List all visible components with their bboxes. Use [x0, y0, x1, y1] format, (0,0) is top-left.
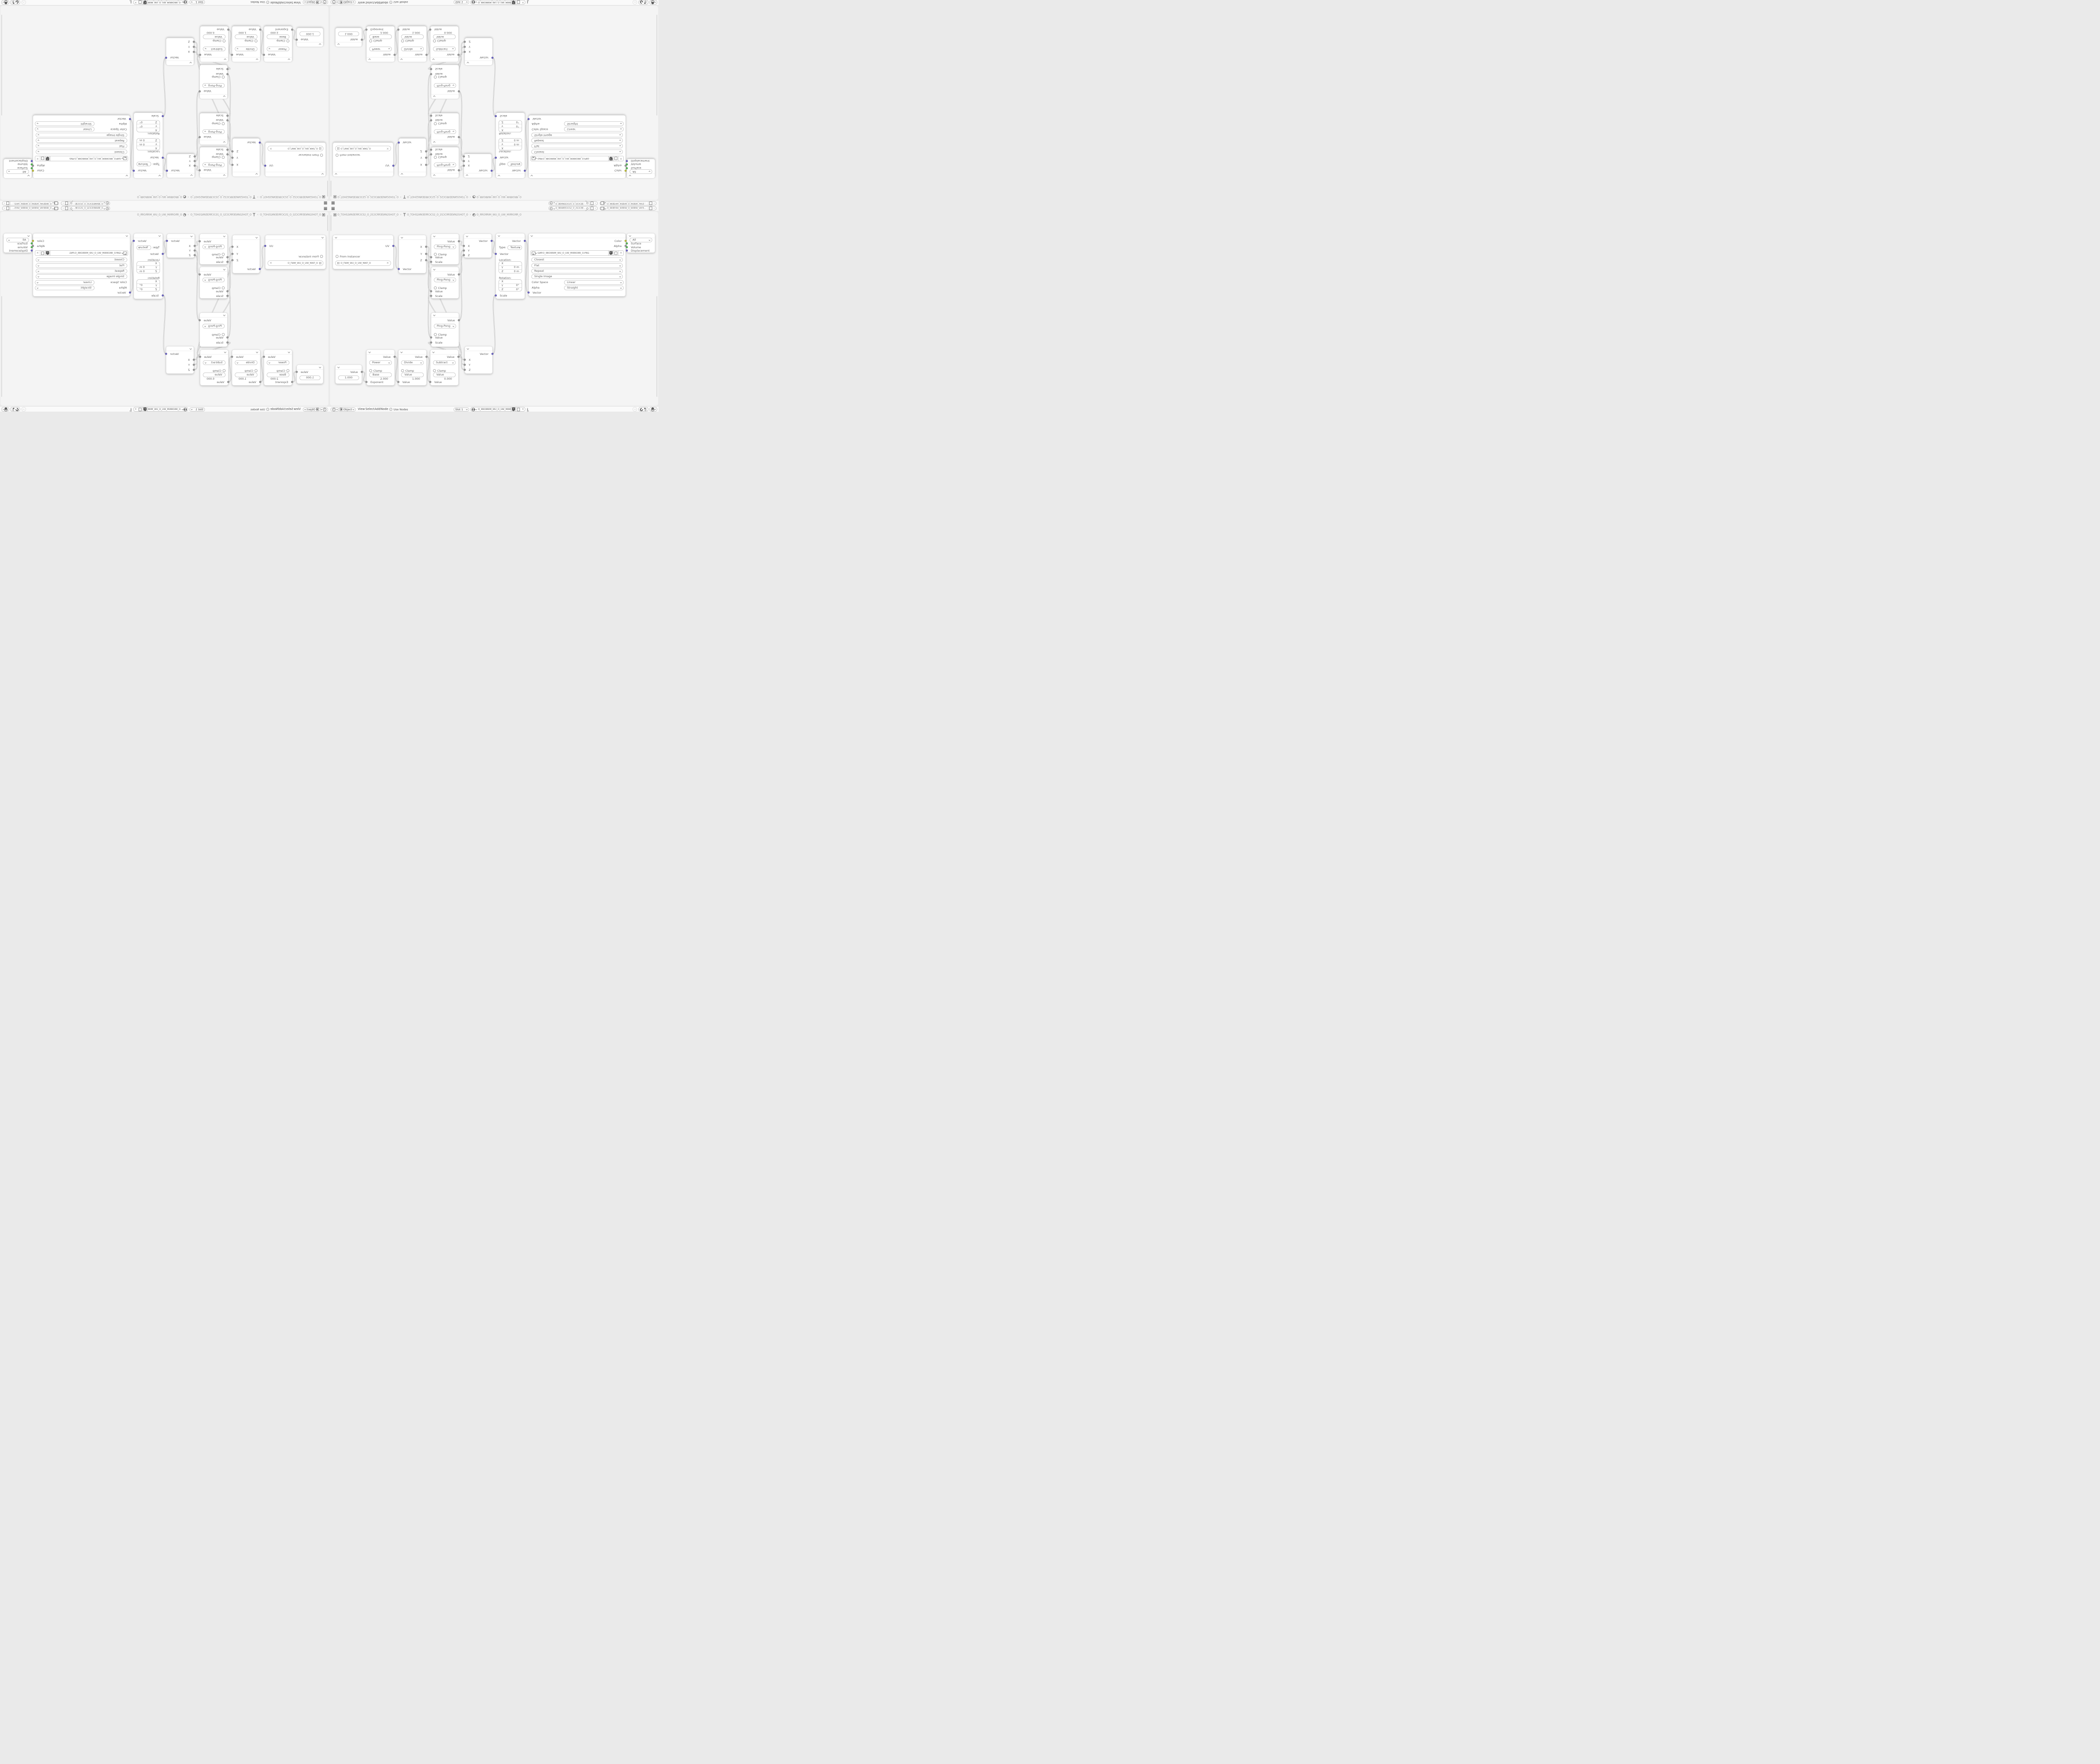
select-repeat[interactable]: Repeat — [36, 138, 127, 143]
new-view-layer-button[interactable] — [6, 202, 10, 205]
select-subtract[interactable]: Subtract — [433, 47, 456, 51]
select-color-space[interactable]: Linear — [564, 280, 624, 285]
node-collapse-header[interactable] — [367, 350, 394, 354]
node-collapse-header[interactable] — [167, 234, 194, 239]
node-math-divide[interactable]: ValueDivideClampValue1.000Value — [398, 26, 427, 62]
socket-vector[interactable] — [524, 170, 526, 172]
new-view-layer-button[interactable] — [648, 207, 652, 210]
scene-selector[interactable]: O_ƎEИИEƎƆCS2_O_2SƆCƎEИ… × — [549, 206, 598, 210]
node-collapse-header[interactable] — [465, 346, 492, 351]
number-field-value[interactable]: Value0.000 — [203, 34, 226, 39]
socket-gray[interactable] — [194, 165, 196, 167]
select-ping-pong[interactable]: Ping-Pong — [434, 324, 456, 328]
node-combine-xyz[interactable]: VectorXYZ — [464, 234, 492, 258]
image-datablock-selector[interactable]: GИP.O_ЯROЯRIM_WU_O_UW_MIЯROЯR_O.PNG✓× — [35, 156, 128, 161]
fake-user-button[interactable]: ✓ — [143, 0, 148, 4]
axis-field[interactable]: Y0 m — [499, 142, 522, 146]
number-field-base[interactable]: Base2.000 — [267, 34, 289, 39]
menu-add[interactable]: Add — [375, 0, 381, 5]
new-image-button[interactable] — [613, 156, 618, 161]
select-color-space[interactable]: Linear — [564, 127, 624, 131]
menu-select[interactable]: Select — [284, 407, 293, 412]
xyz-field-group[interactable]: X0 mY0 mZ0 m — [499, 138, 522, 150]
socket-gray[interactable] — [361, 39, 363, 41]
socket-gray[interactable] — [193, 369, 195, 371]
socket-gray[interactable] — [430, 290, 432, 292]
socket-gray[interactable] — [199, 169, 201, 171]
socket-vector[interactable] — [129, 118, 131, 120]
select-ping-pong[interactable]: Ping-Pong — [202, 129, 225, 134]
socket-gray[interactable] — [464, 359, 466, 361]
pin-icon[interactable] — [586, 207, 589, 210]
select-alpha[interactable]: Straight — [564, 121, 624, 126]
new-scene-button[interactable] — [589, 202, 593, 205]
select-ping-pong[interactable]: Ping-Pong — [434, 244, 456, 249]
unlink-image-button[interactable]: × — [35, 251, 40, 255]
socket-gray[interactable] — [425, 164, 427, 166]
node-mapping[interactable]: VectorType:TextureVectorLocation:X0 mY0 … — [134, 233, 163, 299]
number-field-value[interactable]: Value0.000 — [433, 373, 456, 377]
socket-vector[interactable] — [626, 160, 628, 162]
node-uv-map[interactable]: UVFrom InstancerO_ПAM_WU_O_UW_MAП_O× — [333, 235, 394, 269]
new-material-button[interactable] — [138, 0, 143, 4]
snap-controls[interactable] — [638, 407, 648, 412]
material-selector[interactable]: O_ЯROЯRIM_WU_O_UW_MIЯROЯR_O ✓ × — [133, 0, 188, 5]
axis-field[interactable]: Y0 m — [499, 265, 522, 269]
socket-gray[interactable] — [226, 295, 228, 297]
socket-gray[interactable] — [463, 249, 465, 252]
select-flat[interactable]: Flat — [531, 144, 623, 148]
menu-node[interactable]: Node — [381, 407, 388, 412]
socket-gray[interactable] — [463, 160, 465, 162]
checkbox-clamp[interactable]: Clamp — [434, 122, 447, 126]
scene-selector[interactable]: O_ƎEИИEƎƆCS2_O_2SƆCƎEИ… × — [61, 201, 110, 205]
number-field-value[interactable]: Value1.000 — [235, 34, 257, 39]
select-ping-pong[interactable]: Ping-Pong — [434, 278, 456, 282]
back-arrow-button[interactable] — [633, 0, 637, 5]
node-collapse-header[interactable] — [333, 172, 393, 176]
node-collapse-header[interactable] — [264, 57, 292, 62]
socket-gray[interactable] — [226, 341, 228, 344]
socket-gray[interactable] — [425, 259, 427, 261]
pin-material-icon[interactable] — [527, 408, 528, 412]
socket-gray[interactable] — [458, 90, 460, 92]
breadcrumb-item[interactable]: O_TOHS2ИNƎEЯRƆCS2_O_2SƆCЯRƎEИN2SHOT_O — [191, 195, 256, 199]
menu-add[interactable]: Add — [278, 0, 284, 5]
node-value[interactable]: Value1.000 — [297, 28, 323, 47]
node-collapse-header[interactable] — [431, 173, 459, 178]
new-view-layer-button[interactable] — [648, 202, 652, 205]
new-material-button[interactable] — [516, 0, 521, 4]
node-collapse-header[interactable] — [200, 350, 228, 354]
uv-map-selector[interactable]: O_ПAM_WU_O_UW_MAП_O× — [335, 146, 391, 151]
node-material-output[interactable]: AllSurfaceVolumeDisplacement — [3, 159, 32, 178]
axis-field[interactable]: X0° — [499, 280, 522, 283]
socket-gray[interactable] — [458, 273, 460, 276]
select-ping-pong[interactable]: Ping-Pong — [202, 244, 225, 249]
select-alpha[interactable]: Straight — [564, 286, 624, 290]
socket-gray[interactable] — [296, 371, 298, 373]
socket-gray[interactable] — [263, 356, 265, 358]
pin-material-icon[interactable] — [527, 0, 528, 4]
node-collapse-header[interactable] — [200, 57, 228, 62]
node-collapse-header[interactable] — [166, 346, 194, 351]
unlink-material-button[interactable]: × — [134, 407, 138, 411]
socket-gray[interactable] — [464, 364, 466, 366]
socket-gray[interactable] — [231, 259, 234, 261]
node-separate-xyz[interactable]: XYZVector — [399, 235, 426, 273]
socket-gray[interactable] — [226, 68, 228, 70]
socket-gray[interactable] — [194, 245, 196, 247]
select-closest[interactable]: Closest — [531, 150, 623, 154]
socket-vector[interactable] — [31, 249, 33, 252]
xyz-field-group[interactable]: X0°Y0°Z0° — [499, 120, 522, 132]
axis-field[interactable]: Z0° — [499, 121, 522, 124]
socket-gray[interactable] — [194, 160, 196, 162]
checkbox-from-instancer[interactable]: From Instancer — [299, 153, 323, 157]
socket-vector[interactable] — [264, 245, 266, 247]
select-power[interactable]: Power — [267, 360, 289, 365]
value-field[interactable]: 1.000 — [299, 375, 320, 380]
new-image-button[interactable] — [613, 251, 618, 255]
node-collapse-header[interactable] — [33, 234, 130, 238]
node-collapse-header[interactable] — [431, 267, 459, 272]
scene-selector[interactable]: O_ƎEИИEƎƆCS2_O_2SƆCƎEИ… × — [61, 206, 110, 210]
view-layer-selector[interactable]: O_ЯRƎEYAV_WƎEIW_O_WIƎEW_VAYƎEЯR_O × — [600, 206, 656, 210]
select-subtract[interactable]: Subtract — [203, 47, 226, 51]
node-math-power[interactable]: ValuePowerClampBase2.000Exponent — [366, 349, 395, 386]
socket-shader[interactable] — [31, 163, 33, 165]
node-collapse-header[interactable] — [297, 42, 323, 47]
socket-shader[interactable] — [31, 167, 33, 169]
node-collapse-header[interactable] — [431, 234, 459, 239]
socket-gray[interactable] — [226, 153, 228, 155]
socket-vector[interactable] — [491, 57, 493, 59]
node-combine-xyz-scale[interactable]: VectorXYZ — [166, 38, 194, 66]
select-divide[interactable]: Divide — [235, 360, 257, 365]
node-collapse-header[interactable] — [496, 234, 525, 238]
socket-gray[interactable] — [231, 246, 234, 248]
fake-user-button[interactable]: ✓ — [608, 156, 613, 161]
node-combine-xyz-scale[interactable]: VectorXYZ — [166, 346, 194, 374]
menu-node[interactable]: Node — [270, 0, 278, 5]
socket-gray[interactable] — [430, 341, 432, 344]
snap-controls[interactable] — [10, 407, 20, 412]
node-collapse-header[interactable] — [264, 350, 292, 354]
slot-dropdown[interactable]: Slot 1 — [454, 407, 469, 412]
socket-gray[interactable] — [231, 157, 234, 159]
node-math-power[interactable]: ValuePowerClampBase2.000Exponent — [366, 26, 395, 62]
uv-map-selector[interactable]: O_ПAM_WU_O_UW_MAП_O× — [268, 260, 323, 266]
xyz-field-group[interactable]: X0°Y0°Z0° — [136, 120, 160, 132]
node-image-texture[interactable]: ColorAlphaGИP.O_ЯROЯRIM_WU_O_UW_MIЯROЯR_… — [528, 233, 626, 297]
socket-gray[interactable] — [430, 68, 432, 70]
breadcrumb-item[interactable]: O_TOHS2ИNƎEЯRƆCS2_O_2SƆCЯRƎEИN2SHOT_O — [333, 196, 399, 199]
socket-gray[interactable] — [457, 356, 459, 358]
select-ping-pong[interactable]: Ping-Pong — [202, 324, 225, 328]
view-layer-selector[interactable]: O_ЯRƎEYAV_WƎEIW_O_WIƎEW_VAYƎEЯR_O × — [600, 201, 656, 205]
material-selector[interactable]: O_ЯROЯRIM_WU_O_UW_MIЯROЯR_O ✓ × — [470, 0, 525, 5]
socket-gray[interactable] — [263, 54, 265, 56]
node-math-pingpong-x[interactable]: ValuePing-PongClampValueScale — [199, 234, 228, 265]
socket-gray[interactable] — [291, 29, 293, 31]
socket-vector[interactable] — [524, 240, 526, 242]
use-nodes-checkbox[interactable]: ✓ Use Nodes — [250, 408, 269, 411]
node-math-pingpong-y[interactable]: ValuePing-PongClampValueScale — [431, 267, 459, 299]
socket-gray[interactable] — [430, 115, 432, 117]
select-single-image[interactable]: Single Image — [531, 274, 623, 279]
select-type[interactable]: Texture — [136, 162, 151, 166]
node-mapping[interactable]: VectorType:TextureVectorLocation:X0 mY0 … — [496, 233, 525, 299]
select-ping-pong[interactable]: Ping-Pong — [202, 278, 225, 282]
socket-gray[interactable] — [194, 155, 196, 157]
node-collapse-header[interactable] — [336, 42, 362, 47]
select-type[interactable]: Texture — [136, 245, 151, 250]
select-subtract[interactable]: Subtract — [203, 360, 226, 365]
breadcrumb-item[interactable]: O_TOHS2ИNƎEЯRƆCS2_O_2SƆCЯRƎEИN2SHOT_O — [403, 213, 468, 216]
hamburger-menu-icon[interactable] — [331, 207, 335, 211]
view-layer-selector[interactable]: O_ЯRƎEYAV_WƎEIW_O_WIƎEW_VAYƎEЯR_O × — [2, 201, 59, 205]
socket-color[interactable] — [625, 170, 627, 172]
node-uv-map[interactable]: UVFrom InstancerO_ПAM_WU_O_UW_MAП_O× — [333, 142, 394, 177]
node-math-pingpong-x[interactable]: ValuePing-PongClampValueScale — [431, 147, 459, 178]
node-math-divide[interactable]: ValueDivideClampValue1.000Value — [398, 349, 427, 386]
menu-view[interactable]: View — [358, 407, 365, 412]
select-single-image[interactable]: Single Image — [36, 133, 127, 137]
node-math-subtract[interactable]: ValueSubtractClampValue0.000Value — [430, 349, 459, 386]
socket-vector[interactable] — [495, 253, 497, 255]
socket-gray[interactable] — [463, 245, 465, 247]
axis-field[interactable]: Y0° — [499, 124, 522, 128]
proportional-edit-controls[interactable] — [1, 0, 9, 5]
node-collapse-header[interactable] — [134, 173, 163, 178]
socket-shader[interactable] — [626, 163, 628, 165]
socket-gray[interactable] — [463, 155, 465, 157]
socket-shader[interactable] — [626, 246, 628, 248]
socket-shader[interactable] — [31, 246, 33, 248]
socket-vector[interactable] — [528, 118, 530, 120]
node-math-pingpong-z[interactable]: ValuePing-PongClampValueScale — [431, 312, 459, 347]
node-collapse-header[interactable] — [233, 172, 260, 176]
axis-field[interactable]: Z0 m — [499, 269, 522, 273]
new-image-button[interactable] — [40, 156, 45, 161]
node-collapse-header[interactable] — [333, 235, 393, 240]
select-divide[interactable]: Divide — [401, 360, 424, 365]
node-collapse-header[interactable] — [33, 173, 130, 178]
view-layer-selector[interactable]: O_ЯRƎEYAV_WƎEIW_O_WIƎEW_VAYƎEЯR_O × — [2, 206, 59, 210]
checkbox-clamp[interactable]: Clamp — [401, 369, 414, 373]
xyz-field-group[interactable]: X0°Y0°Z0° — [136, 279, 160, 291]
node-value[interactable]: Value1.000 — [335, 28, 362, 47]
socket-gray[interactable] — [425, 157, 427, 159]
socket-vector[interactable] — [495, 157, 497, 159]
node-collapse-header[interactable] — [465, 60, 492, 65]
select-divide[interactable]: Divide — [235, 47, 257, 51]
select-ping-pong[interactable]: Ping-Pong — [434, 163, 456, 167]
slot-dropdown[interactable]: Slot 1 — [189, 0, 205, 5]
node-separate-xyz[interactable]: XYZVector — [399, 138, 426, 177]
socket-gray[interactable] — [463, 165, 465, 167]
node-collapse-header[interactable] — [232, 350, 260, 354]
back-arrow-button[interactable] — [21, 407, 26, 412]
socket-gray[interactable] — [429, 381, 431, 383]
socket-gray[interactable] — [193, 51, 195, 53]
node-collapse-header[interactable] — [265, 235, 325, 240]
node-collapse-header[interactable] — [200, 173, 227, 178]
socket-gray[interactable] — [199, 54, 201, 56]
select-closest[interactable]: Closest — [36, 257, 127, 262]
select-ping-pong[interactable]: Ping-Pong — [434, 83, 456, 88]
number-field-value[interactable]: Value0.000 — [433, 34, 456, 39]
new-scene-button[interactable] — [65, 202, 69, 205]
node-collapse-header[interactable] — [4, 173, 31, 178]
socket-gray[interactable] — [365, 29, 367, 31]
socket-gray[interactable] — [231, 253, 234, 255]
node-collapse-header[interactable] — [265, 172, 325, 176]
xyz-field-group[interactable]: X0 mY0 mZ0 m — [136, 138, 160, 150]
socket-gray[interactable] — [199, 136, 201, 138]
number-field-value[interactable]: Value1.000 — [401, 34, 424, 39]
node-collapse-header[interactable] — [399, 235, 426, 240]
new-scene-button[interactable] — [65, 207, 69, 210]
breadcrumb-item[interactable]: O_TOHS2ИNƎEЯRƆCS2_O_2SƆCЯRƎEИN2SHOT_O — [260, 213, 325, 216]
proportional-edit-controls[interactable] — [1, 407, 9, 412]
socket-gray[interactable] — [226, 290, 228, 292]
node-collapse-header[interactable] — [367, 57, 394, 62]
new-image-button[interactable] — [40, 251, 45, 255]
socket-gray[interactable] — [425, 54, 428, 56]
menu-select[interactable]: Select — [365, 0, 375, 5]
use-nodes-checkbox[interactable]: ✓ Use Nodes — [389, 1, 408, 4]
node-uv-map[interactable]: UVFrom InstancerO_ПAM_WU_O_UW_MAП_O× — [265, 142, 326, 177]
socket-vector[interactable] — [528, 291, 530, 294]
select-repeat[interactable]: Repeat — [531, 138, 623, 143]
node-collapse-header[interactable] — [529, 173, 625, 178]
number-field-base[interactable]: Base2.000 — [267, 373, 289, 377]
node-material-output[interactable]: AllSurfaceVolumeDisplacement — [3, 233, 32, 253]
socket-gray[interactable] — [227, 29, 229, 31]
socket-gray[interactable] — [199, 90, 201, 92]
pin-icon[interactable] — [70, 202, 73, 205]
material-selector[interactable]: O_ЯROЯRIM_WU_O_UW_MIЯROЯR_O ✓ × — [470, 407, 525, 412]
socket-gray[interactable] — [193, 46, 195, 48]
socket-gray[interactable] — [430, 256, 432, 258]
axis-field[interactable]: Y0 m — [137, 265, 160, 269]
axis-field[interactable]: Z0° — [499, 287, 522, 291]
select-divide[interactable]: Divide — [401, 47, 424, 51]
menu-node[interactable]: Node — [270, 407, 278, 412]
editor-type-button[interactable] — [319, 407, 328, 412]
node-image-texture[interactable]: ColorAlphaGИP.O_ЯROЯRIM_WU_O_UW_MIЯROЯR_… — [33, 115, 130, 178]
breadcrumb-item[interactable]: O_ЯROЯRIM_WU_O_UW_MIЯROЯR_O — [137, 196, 186, 199]
uv-map-selector[interactable]: O_ПAM_WU_O_UW_MAП_O× — [268, 146, 323, 151]
breadcrumb-item[interactable]: O_TOHS2ИNƎEЯRƆCS2_O_2SƆCЯRƎEИN2SHOT_O — [333, 213, 399, 216]
node-collapse-header[interactable] — [627, 173, 655, 178]
mode-dropdown[interactable]: Object — [338, 0, 356, 5]
scene-selector[interactable]: O_ƎEИИEƎƆCS2_O_2SƆCƎEИ… × — [549, 201, 598, 205]
socket-gray[interactable] — [429, 29, 431, 31]
node-collapse-header[interactable] — [399, 57, 426, 62]
socket-gray[interactable] — [193, 41, 195, 43]
new-view-layer-button[interactable] — [6, 207, 10, 210]
socket-vector[interactable] — [133, 170, 135, 172]
breadcrumb-item[interactable]: O_TOHS2ИNƎEЯRƆCS2_O_2SƆCЯRƎEИN2SHOT_O — [191, 213, 256, 216]
node-collapse-header[interactable] — [134, 234, 163, 238]
node-math-subtract[interactable]: ValueSubtractClampValue0.000Value — [430, 26, 459, 62]
socket-gray[interactable] — [430, 149, 432, 151]
axis-field[interactable]: Y0° — [137, 283, 160, 287]
node-math-pingpong-y[interactable]: ValuePing-PongClampValueScale — [199, 113, 228, 145]
axis-field[interactable]: X0 m — [499, 262, 522, 265]
select-flat[interactable]: Flat — [531, 263, 623, 268]
image-datablock-selector[interactable]: GИP.O_ЯROЯRIM_WU_O_UW_MIЯROЯR_O.PNG✓× — [530, 250, 624, 256]
node-math-pingpong-x[interactable]: ValuePing-PongClampValueScale — [431, 234, 459, 265]
hamburger-menu-icon[interactable] — [331, 201, 335, 205]
socket-vector[interactable] — [166, 240, 168, 242]
checkbox-clamp[interactable]: Clamp — [369, 369, 382, 373]
select-flat[interactable]: Flat — [36, 263, 127, 268]
select-color-space[interactable]: Linear — [35, 280, 94, 285]
node-collapse-header[interactable] — [464, 173, 491, 178]
xyz-field-group[interactable]: X0 mY0 mZ0 m — [136, 261, 160, 273]
node-math-subtract[interactable]: ValueSubtractClampValue0.000Value — [200, 26, 228, 62]
socket-gray[interactable] — [199, 319, 201, 321]
snap-controls[interactable] — [10, 0, 20, 5]
breadcrumb-item[interactable]: O_TOHS2ИNƎEЯRƆCS2_O_2SƆCЯRƎEИN2SHOT_O — [260, 196, 325, 199]
breadcrumb-item[interactable]: O_ЯROЯRIM_WU_O_UW_MIЯROЯR_O — [137, 213, 186, 216]
socket-gray[interactable] — [464, 41, 466, 43]
menu-select[interactable]: Select — [284, 0, 293, 5]
axis-field[interactable]: Z0 m — [137, 139, 160, 142]
new-scene-button[interactable] — [589, 207, 593, 210]
socket-vector[interactable] — [162, 253, 164, 255]
checkbox-from-instancer[interactable]: From Instancer — [299, 255, 323, 258]
socket-gray[interactable] — [226, 115, 228, 117]
node-collapse-header[interactable] — [233, 235, 260, 240]
node-combine-xyz[interactable]: VectorXYZ — [464, 154, 492, 178]
unlink-material-button[interactable]: × — [521, 407, 525, 411]
socket-gray[interactable] — [259, 381, 261, 383]
breadcrumb-item[interactable]: O_ЯROЯRIM_WU_O_UW_MIЯROЯR_O — [472, 196, 521, 199]
hamburger-menu-icon[interactable] — [323, 201, 327, 205]
checkbox-clamp[interactable]: Clamp — [244, 39, 257, 43]
socket-vector[interactable] — [129, 291, 131, 294]
checkbox-clamp[interactable]: Clamp — [276, 369, 289, 373]
socket-vector[interactable] — [495, 294, 497, 297]
node-collapse-header[interactable] — [431, 313, 459, 318]
checkbox-clamp[interactable]: Clamp — [433, 369, 446, 373]
node-combine-xyz-scale[interactable]: VectorXYZ — [465, 38, 493, 66]
select-power[interactable]: Power — [369, 47, 392, 51]
mode-dropdown[interactable]: Object — [338, 407, 356, 412]
axis-field[interactable]: Z0° — [137, 287, 160, 291]
axis-field[interactable]: Z0 m — [137, 269, 160, 273]
axis-field[interactable]: Z0° — [137, 121, 160, 124]
socket-gray[interactable] — [226, 73, 228, 75]
fake-user-button[interactable]: ✓ — [143, 407, 148, 411]
checkbox-clamp[interactable]: Clamp — [433, 39, 446, 43]
node-collapse-header[interactable] — [431, 140, 459, 144]
checkbox-clamp[interactable]: Clamp — [213, 39, 226, 43]
socket-gray[interactable] — [231, 54, 233, 56]
xyz-field-group[interactable]: X0°Y0°Z0° — [499, 279, 522, 291]
socket-gray[interactable] — [430, 295, 432, 297]
node-collapse-header[interactable] — [399, 172, 426, 176]
node-combine-xyz[interactable]: VectorXYZ — [167, 154, 195, 178]
node-value[interactable]: Value1.000 — [297, 365, 323, 384]
socket-vector[interactable] — [392, 245, 394, 247]
mode-dropdown[interactable]: Object — [303, 407, 320, 412]
